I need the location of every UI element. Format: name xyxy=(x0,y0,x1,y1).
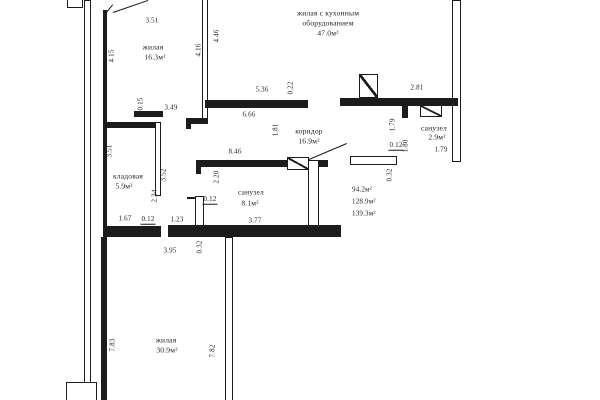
dim-bath1-inner: 2.20 xyxy=(214,170,221,183)
dim-bath1-wall: 0.12 xyxy=(202,196,217,205)
dim-kitchen-opening: 5.36 xyxy=(255,87,268,94)
dim-room2-wall: 0.32 xyxy=(197,240,204,253)
leader-line-entry xyxy=(309,143,347,160)
wall-stub-bottom-left xyxy=(66,382,97,400)
wall-room2-top xyxy=(168,225,341,237)
dim-corridor-left: 1.81 xyxy=(273,123,280,136)
leader-line-top xyxy=(113,0,148,13)
bath2-door-symbol xyxy=(420,105,442,117)
dim-kitchen-right: 2.81 xyxy=(410,85,423,92)
dim-room1-left: 4.15 xyxy=(109,49,116,62)
dim-storage-left: 3.51 xyxy=(107,144,114,157)
bath2-name: санузел xyxy=(421,125,447,132)
wall-storage-bottom xyxy=(104,226,161,237)
corridor-name: коридор xyxy=(295,128,323,135)
dim-bath2-bottom: 1.79 xyxy=(434,147,447,154)
room2-area: 30.9м² xyxy=(156,347,177,354)
wall-storage-top xyxy=(104,122,161,128)
wall-room1-foot-drop xyxy=(186,124,191,129)
dim-kitchen-wall: 0.22 xyxy=(288,81,295,94)
wall-corridor-top-left xyxy=(205,100,308,108)
wall-stub-top-left xyxy=(67,0,83,8)
kitchen-area: 47.0м² xyxy=(317,30,338,37)
dim-room2-top: 3.95 xyxy=(163,248,176,255)
corridor-area: 16.9м² xyxy=(298,138,319,145)
wall-outer-right xyxy=(452,0,461,162)
dim-room1-top: 3.51 xyxy=(145,18,158,25)
wall-bath2-stub xyxy=(402,106,408,118)
wall-bath2-bottom xyxy=(350,156,397,165)
dim-storage-bottom: 1.67 xyxy=(118,216,131,223)
wall-bath1-top-drop xyxy=(196,167,201,174)
dim-bath2-out: 0.32 xyxy=(387,168,394,181)
vent-shaft-symbol xyxy=(359,74,378,98)
dim-kitchen-bottom: 6.66 xyxy=(242,112,255,119)
floor-plan: 3.51 жилая 16.3м² 4.15 4.16 4.46 0.15 3.… xyxy=(0,0,600,400)
total-area-3: 139.3м² xyxy=(352,211,376,218)
dim-storage-right: 3.52 xyxy=(161,168,168,181)
dim-room2-right: 7.82 xyxy=(210,344,217,357)
dim-room1-wall: 0.15 xyxy=(138,97,145,110)
dim-bath1-top: 8.46 xyxy=(228,149,241,156)
wall-corridor-stub xyxy=(319,160,328,167)
total-area-2: 128.9м² xyxy=(352,199,376,206)
storage-area: 5.9м² xyxy=(115,183,132,190)
dim-room1-right-out: 4.46 xyxy=(214,29,221,42)
entry-door-symbol xyxy=(287,157,309,170)
bath1-area: 8.1м² xyxy=(241,200,258,207)
room2-name: жилая xyxy=(156,337,177,344)
dim-room1-bottom: 3.49 xyxy=(164,105,177,112)
wall-tick xyxy=(187,197,195,199)
dim-bath2-left: 1.79 xyxy=(390,118,397,131)
wall-room2-right xyxy=(225,237,233,400)
dim-door-bottom: 1.23 xyxy=(170,217,183,224)
kitchen-name-line2: оборудованием xyxy=(302,20,353,27)
dim-bath1-bottom: 3.77 xyxy=(248,218,261,225)
wall-storage-right xyxy=(155,122,161,196)
dim-room1-right-in: 4.16 xyxy=(196,43,203,56)
bath1-name: санузел xyxy=(238,189,264,196)
dim-storage-wall: 0.12 xyxy=(140,216,155,225)
kitchen-name-line1: жилая с кухонным xyxy=(297,10,359,17)
wall-bath1-top xyxy=(196,160,288,167)
bath2-area: 2.9м² xyxy=(428,134,445,141)
storage-name: кладовая xyxy=(113,173,143,180)
wall-outer-left xyxy=(84,0,91,385)
wall-room2-left xyxy=(101,237,106,400)
wall-room1-bottom xyxy=(134,111,163,117)
dim-bath1-left: 2.34 xyxy=(152,189,159,202)
room1-name: жилая xyxy=(143,44,164,51)
dim-bath2-door: 1.80 xyxy=(403,139,410,152)
dim-room2-left: 7.83 xyxy=(110,338,117,351)
total-area-1: 94.2м² xyxy=(352,187,372,194)
room1-area: 16.3м² xyxy=(144,54,165,61)
